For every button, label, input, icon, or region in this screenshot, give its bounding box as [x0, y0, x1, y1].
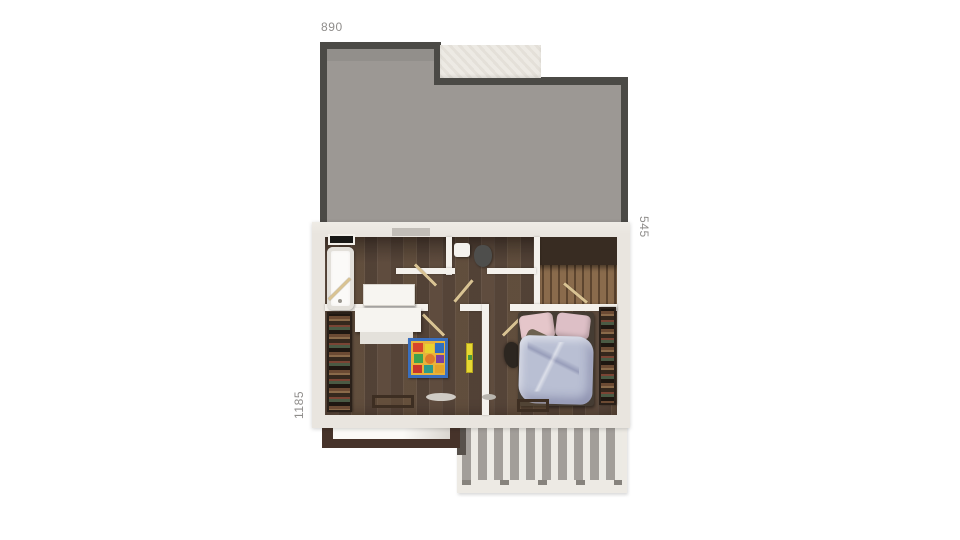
bathroom-vanity	[363, 284, 415, 306]
wall-wc-hall-b	[487, 268, 536, 274]
roof-left-section	[320, 42, 434, 223]
dimension-label-top: 890	[321, 20, 343, 34]
play-mat-tile	[425, 354, 435, 364]
dresser-shelf	[360, 332, 413, 344]
play-mat-tile	[435, 365, 444, 373]
play-mat	[408, 338, 448, 378]
dimension-label-left: 1185	[292, 391, 306, 419]
washbasin	[454, 243, 470, 257]
play-mat-tile	[414, 354, 423, 363]
pergola	[457, 420, 627, 493]
play-mat-tile	[425, 344, 434, 353]
pergola-slats	[462, 423, 622, 480]
play-mat-tile	[424, 365, 433, 373]
roof-right-section	[434, 77, 628, 223]
bathroom-window	[328, 234, 355, 245]
play-mat-tile	[436, 355, 444, 363]
floor-dish	[482, 394, 496, 400]
wardrobe-left	[327, 312, 352, 412]
floor-mat-master	[517, 399, 549, 412]
duvet	[518, 335, 594, 405]
toy-yellow	[466, 343, 473, 373]
floor-mat-kids	[372, 395, 414, 408]
oval-rug	[426, 393, 456, 401]
play-mat-tile	[413, 365, 422, 373]
wardrobe-right	[599, 307, 616, 405]
stair-void	[536, 237, 617, 265]
roof-shading	[327, 49, 434, 61]
top-wall-window	[392, 228, 430, 236]
pergola-ticks	[462, 480, 622, 485]
floor-plan	[312, 222, 630, 428]
dimension-label-right: 545	[637, 216, 651, 238]
floor-plan-figure: 890 545 1185	[0, 0, 960, 540]
play-mat-tile	[435, 343, 444, 353]
dresser	[355, 308, 421, 332]
play-mat-tile	[413, 343, 423, 352]
terrace-block	[440, 45, 541, 78]
toilet	[474, 245, 492, 267]
bed	[518, 312, 594, 406]
